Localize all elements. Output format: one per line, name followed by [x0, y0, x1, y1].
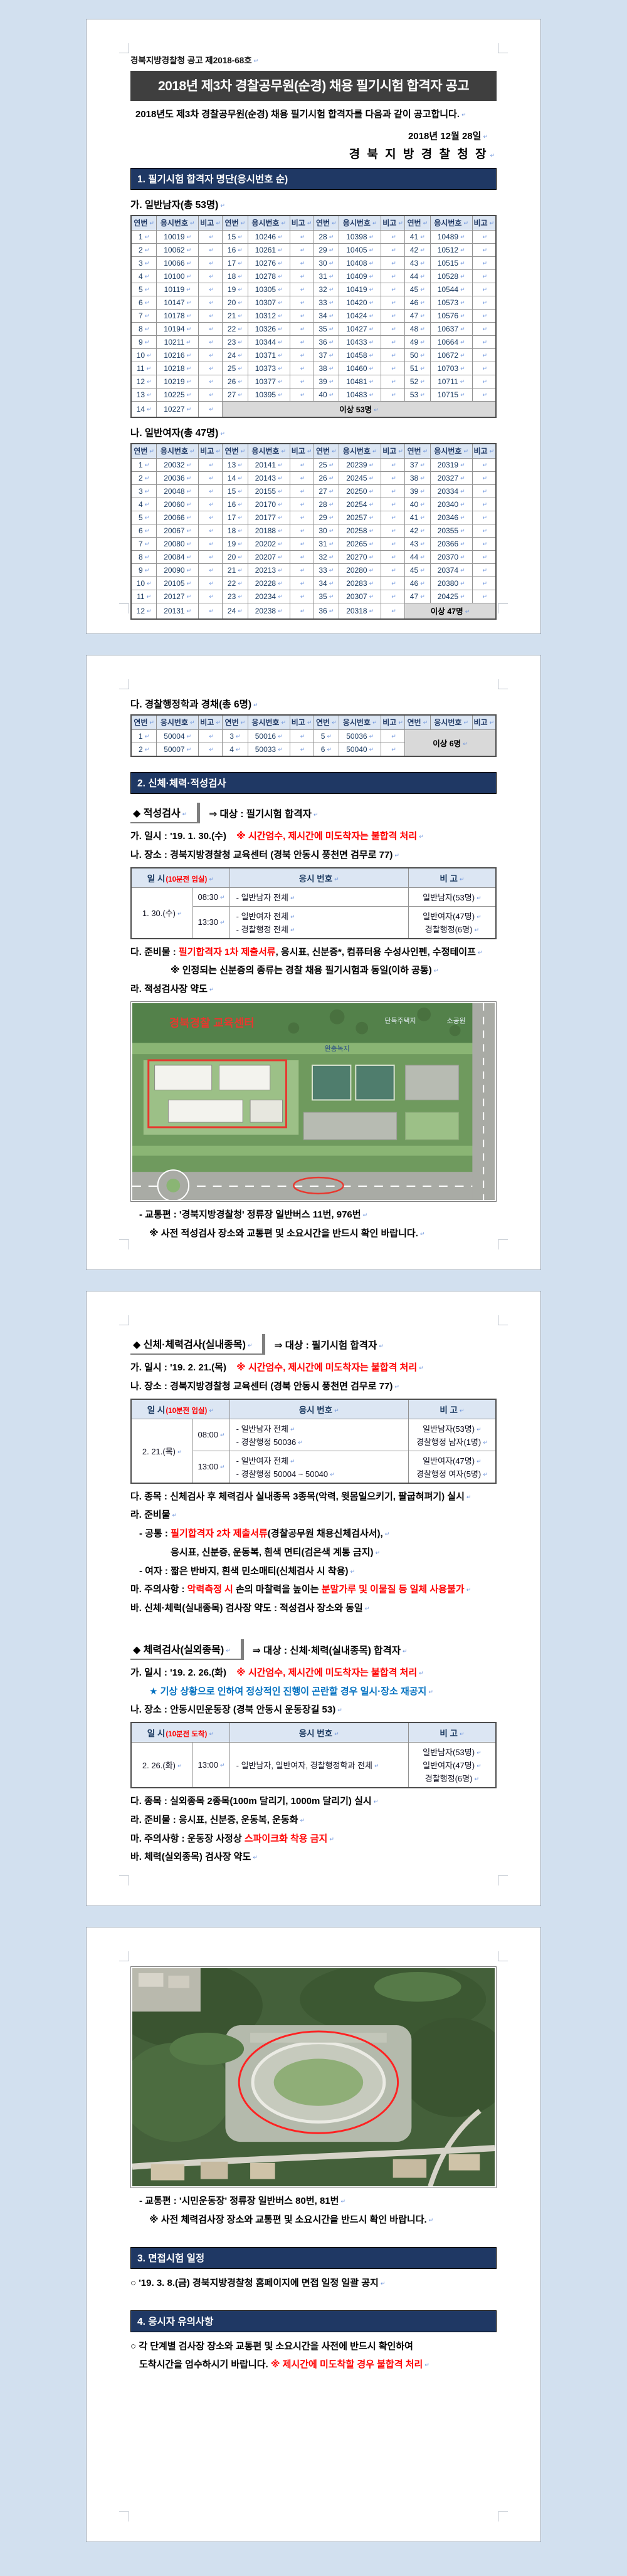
roster-seq: 42 [404, 244, 430, 257]
roster-exam-number: 10715 [430, 388, 472, 402]
roster-note [381, 551, 405, 564]
schedule-note-line: 경찰행정(6명) [411, 1771, 493, 1785]
schedule-note-cell: 일반남자(53명) [408, 887, 496, 906]
roster-note [290, 590, 313, 603]
roster-note [290, 577, 313, 590]
roster-seq: 4 [222, 743, 248, 757]
roster-seq: 11 [131, 362, 157, 375]
roster-exam-number: 20177 [248, 511, 290, 524]
section-3-bar: 3. 면접시험 일정 [130, 2247, 497, 2269]
roster-exam-number: 10216 [157, 349, 199, 362]
indoor-common-label: - 공통 : [139, 1528, 171, 1539]
roster-seq: 53 [404, 388, 430, 402]
roster-exam-number: 10398 [339, 231, 381, 244]
roster-exam-number: 10373 [248, 362, 290, 375]
roster-seq: 26 [222, 375, 248, 388]
roster-seq: 44 [404, 551, 430, 564]
roster-note [381, 564, 405, 577]
roster-note [472, 362, 496, 375]
roster-seq: 31 [313, 270, 339, 283]
roster-note [472, 336, 496, 349]
roster-note [199, 349, 223, 362]
roster-seq: 5 [131, 283, 157, 296]
outdoor-caution-spikes: 스파이크화 착용 금지 [245, 1833, 334, 1844]
roster-exam-number: 50033 [248, 743, 290, 757]
roster-exam-number: 10278 [248, 270, 290, 283]
roster-col-header: 응시번호 [339, 715, 381, 730]
roster-seq: 2 [131, 244, 157, 257]
aptitude-datetime: 가. 일시 : '19. 1. 30.(수) [130, 831, 226, 842]
schedule-arrival-note: (10분전 입실) [166, 1407, 207, 1415]
roster-col-header: 응시번호 [430, 216, 472, 231]
roster-police-admin-table-wrap: 연번응시번호비고연번응시번호비고연번응시번호비고연번응시번호비고15000435… [130, 714, 497, 757]
roster-exam-number: 10305 [248, 283, 290, 296]
roster-total-cell: 이상 47명 [404, 603, 496, 620]
roster-seq: 33 [313, 296, 339, 310]
roster-note [472, 244, 496, 257]
time-warning: ※ 시간엄수, 제시간에 미도착자는 불합격 처리 [236, 1667, 424, 1678]
roster-exam-number: 10576 [430, 310, 472, 323]
roster-col-header: 비고 [472, 715, 496, 730]
schedule-note-cell: 일반남자(53명)경찰행정 남자(1명) [408, 1419, 496, 1451]
roster-exam-number: 20105 [157, 577, 199, 590]
schedule-numbers-line: - 경찰행정 50036 [233, 1435, 406, 1448]
document-title: 2018년 제3차 경찰공무원(순경) 채용 필기시험 합격자 공고 [130, 71, 497, 101]
cropmark [119, 1951, 129, 1961]
outdoor-map-label: 바. 체력(실외종목) 검사장 약도 [130, 1850, 497, 1864]
roster-exam-number: 20270 [339, 551, 381, 564]
roster-seq: 42 [404, 524, 430, 538]
roster-seq: 34 [313, 310, 339, 323]
outdoor-caution-label: 마. 주의사항 : 운동장 사정상 [130, 1833, 245, 1844]
schedule-number-header: 응시 번호 [229, 1723, 408, 1743]
indoor-schedule-table-wrap: 일 시(10분전 입실)응시 번호비 고2. 21.(목)08:00- 일반남자… [130, 1399, 497, 1484]
roster-note [381, 362, 405, 375]
roster-exam-number: 10395 [248, 388, 290, 402]
roster-exam-number: 20143 [248, 472, 290, 485]
aptitude-map-label: 라. 적성검사장 약도 [130, 983, 497, 996]
roster-seq: 7 [131, 538, 157, 551]
section-4-bar: 4. 응시자 유의사항 [130, 2310, 497, 2332]
roster-note [290, 730, 313, 743]
roster-col-header: 비고 [381, 715, 405, 730]
roster-note [199, 257, 223, 270]
schedule-note-line: 경찰행정 여자(5명) [411, 1467, 493, 1480]
roster-exam-number: 10246 [248, 231, 290, 244]
roster-exam-number: 20307 [339, 590, 381, 603]
roster-exam-number: 10307 [248, 296, 290, 310]
roster-seq: 28 [313, 498, 339, 511]
roster-exam-number: 20319 [430, 459, 472, 472]
roster-exam-number: 20202 [248, 538, 290, 551]
roster-seq: 11 [131, 590, 157, 603]
roster-note [472, 590, 496, 603]
indoor-caution-label: 마. 주의사항 : [130, 1584, 187, 1595]
roster-exam-number: 20346 [430, 511, 472, 524]
roster-seq: 25 [222, 362, 248, 375]
roster-col-header: 연번 [222, 715, 248, 730]
roster-note [472, 296, 496, 310]
schedule-note-header: 비 고 [408, 1723, 496, 1743]
signer-title: 경 북 지 방 경 찰 청 장 [130, 145, 497, 162]
roster-note [290, 538, 313, 551]
cropmark [119, 603, 129, 613]
roster-note [290, 498, 313, 511]
roster-exam-number: 20370 [430, 551, 472, 564]
roster-note [381, 296, 405, 310]
roster-exam-number: 20234 [248, 590, 290, 603]
roster-note [199, 270, 223, 283]
cropmark [119, 1239, 129, 1249]
schedule-datetime-header: 일 시(10분전 입실) [131, 868, 229, 888]
schedule-table: 일 시(10분전 도착)응시 번호비 고2. 26.(화)13:00- 일반남자… [130, 1722, 497, 1788]
roster-note [199, 485, 223, 498]
roster-seq: 40 [313, 388, 339, 402]
cropmark [498, 1315, 508, 1325]
roster-seq: 3 [131, 485, 157, 498]
roster-exam-number: 10326 [248, 323, 290, 336]
roster-note [381, 270, 405, 283]
roster-seq: 17 [222, 511, 248, 524]
schedule-note-line: 일반남자(53명) [411, 890, 493, 904]
schedule-datetime-header: 일 시(10분전 입실) [131, 1399, 229, 1419]
roster-seq: 9 [131, 564, 157, 577]
roster-note [290, 485, 313, 498]
roster-note [290, 375, 313, 388]
roster-note [290, 310, 313, 323]
roster-note [199, 603, 223, 620]
roster-seq: 24 [222, 349, 248, 362]
roster-note [472, 388, 496, 402]
roster-exam-number: 10544 [430, 283, 472, 296]
roster-seq: 18 [222, 524, 248, 538]
roster-note [199, 388, 223, 402]
schedule-arrival-note: (10분전 입실) [166, 876, 207, 884]
roster-note [472, 485, 496, 498]
map-center-label: 경북경찰 교육센터 [169, 1016, 255, 1029]
roster-exam-number: 10512 [430, 244, 472, 257]
indoor-caution-grip: 악력측정 시 [187, 1584, 233, 1595]
roster-seq: 21 [222, 564, 248, 577]
roster-note [199, 244, 223, 257]
roster-col-header: 비고 [381, 444, 405, 459]
roster-seq: 45 [404, 564, 430, 577]
roster-exam-number: 10408 [339, 257, 381, 270]
roster-exam-number: 10433 [339, 336, 381, 349]
roster-note [472, 577, 496, 590]
roster-exam-number: 20155 [248, 485, 290, 498]
roster-note [381, 485, 405, 498]
cropmark [498, 2511, 508, 2521]
roster-seq: 49 [404, 336, 430, 349]
section-1-bar: 1. 필기시험 합격자 명단(응시번호 순) [130, 168, 497, 190]
roster-exam-number: 20327 [430, 472, 472, 485]
map-housing-label: 단독주택지 [385, 1016, 416, 1025]
roster-col-header: 비고 [199, 715, 223, 730]
indoor-test-label: ◆ 신체·체력검사(실내종목) [130, 1334, 265, 1355]
roster-note [290, 244, 313, 257]
roster-seq: 4 [131, 270, 157, 283]
roster-col-header: 연번 [131, 216, 157, 231]
cropmark [119, 1875, 129, 1885]
roster-seq: 38 [404, 472, 430, 485]
roster-seq: 22 [222, 577, 248, 590]
schedule-time-cell: 13:00 [193, 1451, 229, 1483]
roster-note [381, 244, 405, 257]
indoor-common-line2: 응시표, 신분증, 운동복, 흰색 면티(검은색 계통 금지) [130, 1546, 497, 1560]
roster-seq: 23 [222, 336, 248, 349]
roster-exam-number: 10377 [248, 375, 290, 388]
roster-note [381, 459, 405, 472]
roster-note [381, 257, 405, 270]
outdoor-transport: - 교통편 : '시민운동장' 정류장 일반버스 80번, 81번 [130, 2194, 497, 2208]
roster-seq: 12 [131, 603, 157, 620]
roster-col-header: 응시번호 [157, 444, 199, 459]
roster-seq: 19 [222, 538, 248, 551]
roster-exam-number: 10405 [339, 244, 381, 257]
roster-note [199, 323, 223, 336]
indoor-venue: 나. 장소 : 경북지방경찰청 교육센터 (경북 안동시 풍천면 검무로 77) [130, 1380, 497, 1394]
roster-seq: 38 [313, 362, 339, 375]
roster-seq: 39 [404, 485, 430, 498]
roster-seq: 34 [313, 577, 339, 590]
outdoor-confirm-note: ※ 사전 체력검사장 장소와 교통편 및 소요시간을 반드시 확인 바랍니다. [130, 2213, 497, 2227]
roster-note [472, 511, 496, 524]
roster-seq: 8 [131, 323, 157, 336]
roster-seq: 37 [313, 349, 339, 362]
roster-seq: 1 [131, 730, 157, 743]
roster-seq: 3 [222, 730, 248, 743]
aptitude-venue: 나. 장소 : 경북지방경찰청 교육센터 (경북 안동시 풍천면 검무로 77) [130, 848, 497, 862]
roster-col-header: 연번 [222, 444, 248, 459]
roster-col-header: 연번 [404, 715, 430, 730]
roster-exam-number: 10218 [157, 362, 199, 375]
roster-note [290, 257, 313, 270]
notice-line-2-warning: ※ 제시간에 미도착할 경우 불합격 처리 [271, 2359, 429, 2370]
roster-seq: 21 [222, 310, 248, 323]
schedule-time-cell: 13:00 [193, 1743, 229, 1788]
roster-seq: 52 [404, 375, 430, 388]
roster-note [199, 375, 223, 388]
roster-note [290, 524, 313, 538]
roster-police-admin-title: 다. 경찰행정학과 경채(총 6명) [130, 697, 497, 711]
roster-seq: 48 [404, 323, 430, 336]
roster-seq: 50 [404, 349, 430, 362]
schedule-table: 일 시(10분전 입실)응시 번호비 고2. 21.(목)08:00- 일반남자… [130, 1399, 497, 1484]
roster-note [381, 524, 405, 538]
roster-exam-number: 20066 [157, 511, 199, 524]
roster-col-header: 비고 [290, 715, 313, 730]
schedule-note-line: 일반여자(47명) [411, 909, 493, 922]
roster-seq: 15 [222, 231, 248, 244]
roster-seq: 6 [313, 743, 339, 757]
roster-exam-number: 10276 [248, 257, 290, 270]
document-viewer: 경북지방경찰청 공고 제2018-68호 2018년 제3차 경찰공무원(순경)… [0, 0, 627, 2561]
roster-exam-number: 20032 [157, 459, 199, 472]
roster-seq: 12 [131, 375, 157, 388]
roster-col-header: 응시번호 [430, 444, 472, 459]
cropmark [498, 43, 508, 53]
roster-seq: 16 [222, 498, 248, 511]
roster-note [381, 283, 405, 296]
schedule-time-cell: 13:30 [193, 906, 229, 939]
schedule-numbers-cell: - 일반여자 전체- 경찰행정 50004 ~ 50040 [229, 1451, 408, 1483]
roster-seq: 26 [313, 472, 339, 485]
roster-note [472, 498, 496, 511]
schedule-numbers-line: - 일반여자 전체 [233, 1454, 406, 1467]
schedule-numbers-line: - 경찰행정 전체 [233, 922, 406, 936]
outdoor-target: ⇒ 대상 : 신체·체력(실내종목) 합격자 [253, 1639, 408, 1657]
outdoor-items: 라. 준비물 : 응시표, 신분증, 운동복, 운동화 [130, 1813, 497, 1827]
roster-note [290, 551, 313, 564]
schedule-numbers-cell: - 일반여자 전체- 경찰행정 전체 [229, 906, 408, 939]
roster-seq: 40 [404, 498, 430, 511]
roster-seq: 35 [313, 590, 339, 603]
cropmark [119, 1315, 129, 1325]
aptitude-confirm-note: ※ 사전 적성검사 장소와 교통편 및 소요시간을 반드시 확인 바랍니다. [130, 1227, 497, 1241]
roster-note [199, 310, 223, 323]
roster-exam-number: 20060 [157, 498, 199, 511]
roster-exam-number: 20228 [248, 577, 290, 590]
roster-note [290, 283, 313, 296]
roster-exam-number: 50007 [157, 743, 199, 757]
map-buffer-label: 완충녹지 [325, 1045, 350, 1053]
roster-exam-number: 20425 [430, 590, 472, 603]
schedule-note-line: 경찰행정 남자(1명) [411, 1435, 493, 1448]
schedule-numbers-cell: - 일반남자 전체 [229, 887, 408, 906]
roster-exam-number: 20141 [248, 459, 290, 472]
roster-note [381, 743, 405, 757]
roster-note [199, 362, 223, 375]
cropmark [119, 2511, 129, 2521]
roster-note [472, 524, 496, 538]
roster-seq: 3 [131, 257, 157, 270]
roster-exam-number: 10227 [157, 402, 199, 418]
roster-exam-number: 20213 [248, 564, 290, 577]
page-2: 다. 경찰행정학과 경채(총 6명) 연번응시번호비고연번응시번호비고연번응시번… [86, 655, 541, 1270]
roster-note [381, 577, 405, 590]
roster-exam-number: 10194 [157, 323, 199, 336]
notice-number: 경북지방경찰청 공고 제2018-68호 [130, 53, 497, 66]
schedule-time-cell: 08:30 [193, 887, 229, 906]
notice-line-2: 도착시간을 엄수하시기 바랍니다. [139, 2359, 271, 2370]
roster-exam-number: 50016 [248, 730, 290, 743]
roster-exam-number: 10100 [157, 270, 199, 283]
roster-male-title: 가. 일반남자(총 53명) [130, 197, 497, 211]
schedule-note-line: 경찰행정(6명) [411, 922, 493, 936]
roster-exam-number: 10528 [430, 270, 472, 283]
cropmark [498, 679, 508, 689]
roster-note [381, 472, 405, 485]
schedule-date-cell: 2. 21.(목) [131, 1419, 193, 1483]
roster-seq: 37 [404, 459, 430, 472]
roster-note [381, 590, 405, 603]
roster-seq: 19 [222, 283, 248, 296]
roster-exam-number: 10119 [157, 283, 199, 296]
roster-note [472, 538, 496, 551]
roster-seq: 16 [222, 244, 248, 257]
roster-col-header: 연번 [313, 444, 339, 459]
indoor-datetime: 가. 일시 : '19. 2. 21.(목) [130, 1362, 226, 1373]
roster-seq: 35 [313, 323, 339, 336]
roster-note [290, 323, 313, 336]
roster-exam-number: 10062 [157, 244, 199, 257]
page-3: ◆ 신체·체력검사(실내종목) ⇒ 대상 : 필기시험 합격자 가. 일시 : … [86, 1291, 541, 1906]
pass-roster-table: 연번응시번호비고연번응시번호비고연번응시번호비고연번응시번호비고12003213… [130, 443, 497, 620]
cropmark [498, 1239, 508, 1249]
roster-col-header: 비고 [381, 216, 405, 231]
roster-note [381, 538, 405, 551]
aptitude-target: ⇒ 대상 : 필기시험 합격자 [209, 803, 318, 820]
roster-note [381, 349, 405, 362]
time-warning: ※ 시간엄수, 제시간에 미도착자는 불합격 처리 [236, 831, 424, 842]
roster-note [472, 472, 496, 485]
roster-exam-number: 10664 [430, 336, 472, 349]
indoor-common-rest: (경찰공무원 채용신체검사서), [268, 1528, 389, 1539]
roster-seq: 41 [404, 511, 430, 524]
roster-note [381, 388, 405, 402]
roster-note [290, 231, 313, 244]
roster-exam-number: 10409 [339, 270, 381, 283]
roster-note [199, 283, 223, 296]
roster-exam-number: 10711 [430, 375, 472, 388]
roster-col-header: 비고 [199, 444, 223, 459]
outdoor-weather-note: ★ 기상 상황으로 인하여 정상적인 진행이 곤란할 경우 일시·장소 재공지 [130, 1685, 497, 1699]
roster-seq: 47 [404, 590, 430, 603]
roster-exam-number: 10424 [339, 310, 381, 323]
roster-seq: 29 [313, 244, 339, 257]
roster-exam-number: 20283 [339, 577, 381, 590]
schedule-date-cell: 1. 30.(수) [131, 887, 193, 939]
roster-seq: 30 [313, 257, 339, 270]
roster-note [472, 257, 496, 270]
roster-seq: 7 [131, 310, 157, 323]
indoor-map-line: 바. 신체·체력(실내종목) 검사장 약도 : 적성검사 장소와 동일 [130, 1602, 497, 1615]
roster-col-header: 응시번호 [157, 715, 199, 730]
roster-col-header: 응시번호 [248, 715, 290, 730]
roster-exam-number: 10178 [157, 310, 199, 323]
roster-seq: 22 [222, 323, 248, 336]
roster-note [199, 296, 223, 310]
roster-note [290, 472, 313, 485]
aptitude-schedule-table-wrap: 일 시(10분전 입실)응시 번호비 고1. 30.(수)08:30- 일반남자… [130, 867, 497, 939]
roster-female-table-wrap: 연번응시번호비고연번응시번호비고연번응시번호비고연번응시번호비고12003213… [130, 443, 497, 620]
roster-exam-number: 10573 [430, 296, 472, 310]
roster-note [472, 459, 496, 472]
roster-note [199, 472, 223, 485]
schedule-date-cell: 2. 26.(화) [131, 1743, 193, 1788]
roster-seq: 47 [404, 310, 430, 323]
satellite-map [132, 1968, 495, 2186]
roster-exam-number: 20250 [339, 485, 381, 498]
roster-exam-number: 10483 [339, 388, 381, 402]
roster-exam-number: 10019 [157, 231, 199, 244]
indoor-target: ⇒ 대상 : 필기시험 합격자 [274, 1334, 383, 1352]
schedule-note-cell: 일반여자(47명)경찰행정 여자(5명) [408, 1451, 496, 1483]
roster-exam-number: 10460 [339, 362, 381, 375]
roster-seq: 31 [313, 538, 339, 551]
roster-seq: 44 [404, 270, 430, 283]
roster-seq: 13 [222, 459, 248, 472]
indoor-items-label: 라. 준비물 [130, 1508, 497, 1522]
schedule-numbers-line: - 일반남자 전체 [233, 890, 406, 904]
schedule-numbers-cell: - 일반남자, 일반여자, 경찰행정학과 전체 [229, 1743, 408, 1788]
roster-total-cell: 이상 6명 [404, 730, 496, 757]
roster-note [290, 511, 313, 524]
roster-note [199, 336, 223, 349]
roster-seq: 28 [313, 231, 339, 244]
roster-exam-number: 10703 [430, 362, 472, 375]
